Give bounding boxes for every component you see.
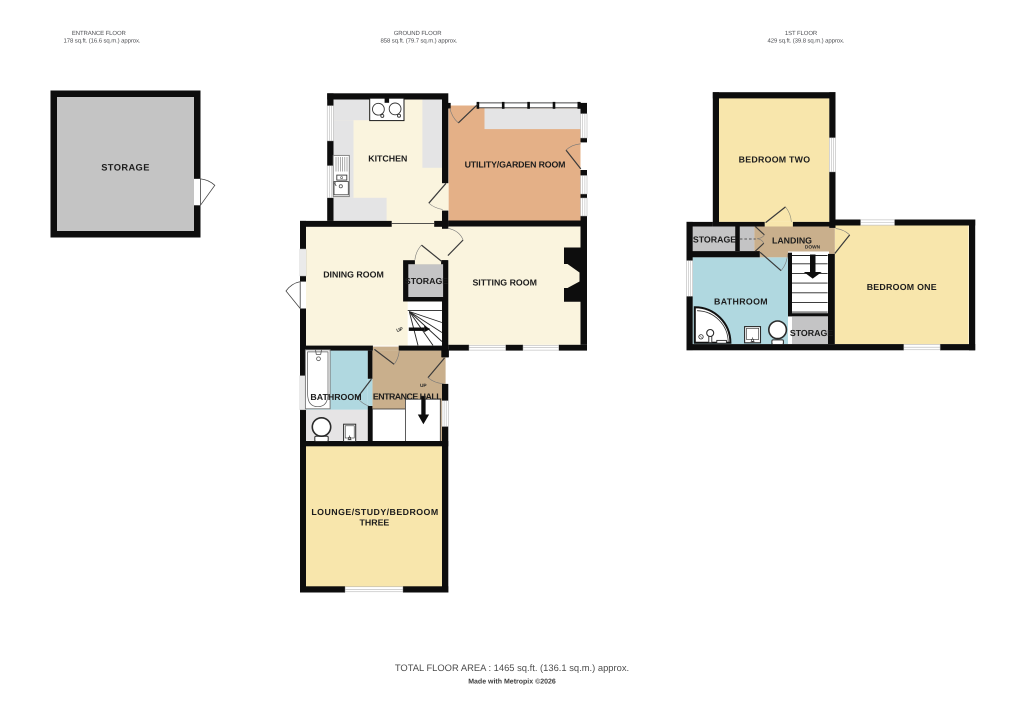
svg-text:TOTAL FLOOR AREA : 1465 sq.ft.: TOTAL FLOOR AREA : 1465 sq.ft. (136.1 sq… <box>395 662 629 673</box>
svg-text:UTILITY/GARDEN ROOM: UTILITY/GARDEN ROOM <box>465 160 566 170</box>
svg-text:ENTRANCE HALL: ENTRANCE HALL <box>373 391 442 401</box>
svg-text:DOWN: DOWN <box>805 245 821 251</box>
svg-text:UP: UP <box>420 383 427 389</box>
svg-text:STORAGE: STORAGE <box>405 276 448 286</box>
svg-text:BEDROOM TWO: BEDROOM TWO <box>739 155 811 165</box>
svg-text:429 sq.ft. (39.8 sq.m.) approx: 429 sq.ft. (39.8 sq.m.) approx. <box>768 37 845 44</box>
svg-text:SITTING ROOM: SITTING ROOM <box>472 278 537 288</box>
svg-text:DINING ROOM: DINING ROOM <box>323 270 384 280</box>
svg-text:GROUND FLOOR: GROUND FLOOR <box>394 30 443 37</box>
svg-text:STORAGE: STORAGE <box>693 235 736 245</box>
svg-text:THREE: THREE <box>359 518 389 528</box>
svg-text:BEDROOM ONE: BEDROOM ONE <box>867 282 937 292</box>
svg-text:1ST FLOOR: 1ST FLOOR <box>785 30 818 37</box>
svg-text:LANDING: LANDING <box>772 235 812 245</box>
svg-text:ENTRANCE FLOOR: ENTRANCE FLOOR <box>72 30 127 37</box>
svg-text:STORAGE: STORAGE <box>101 162 150 172</box>
svg-text:STORAGE: STORAGE <box>790 328 833 338</box>
svg-text:178 sq.ft. (16.6 sq.m.) approx: 178 sq.ft. (16.6 sq.m.) approx. <box>64 37 141 44</box>
svg-text:BATHROOM: BATHROOM <box>714 297 768 307</box>
svg-text:BATHROOM: BATHROOM <box>310 392 361 402</box>
svg-text:858 sq.ft. (79.7 sq.m.) approx: 858 sq.ft. (79.7 sq.m.) approx. <box>381 37 458 44</box>
svg-text:LOUNGE/STUDY/BEDROOM: LOUNGE/STUDY/BEDROOM <box>311 507 438 517</box>
svg-text:Made with Metropix ©2026: Made with Metropix ©2026 <box>468 678 556 686</box>
svg-text:KITCHEN: KITCHEN <box>368 154 407 164</box>
